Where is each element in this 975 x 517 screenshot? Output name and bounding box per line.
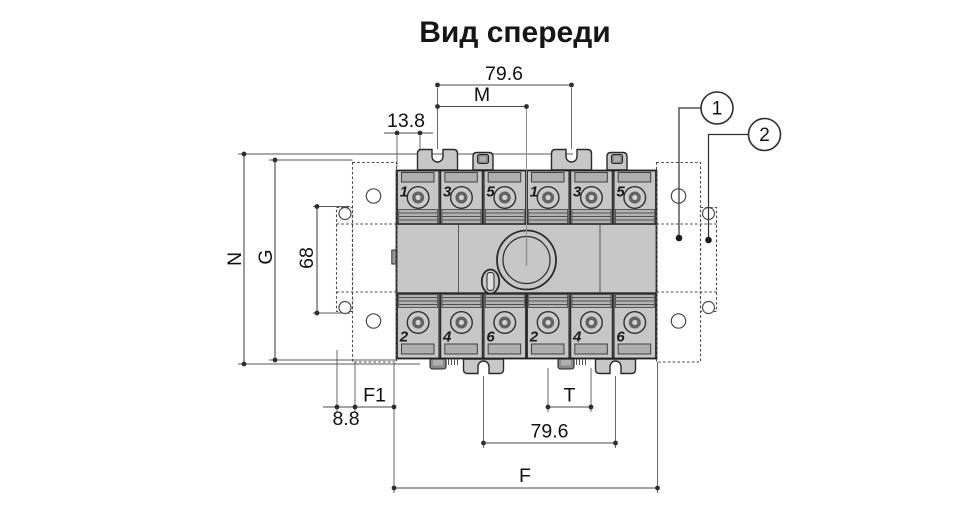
dim-dot <box>242 152 247 157</box>
terminal-number: 5 <box>486 184 495 201</box>
dim-label: F1 <box>363 385 386 407</box>
terminal-number: 3 <box>443 184 452 201</box>
terminal-lip <box>402 344 435 354</box>
dim-dot <box>315 311 320 316</box>
terminal-number: 1 <box>400 184 408 201</box>
mounting-tab-top-left <box>418 150 458 171</box>
tab-hole-inner <box>480 157 486 162</box>
callout-label: 2 <box>759 125 770 146</box>
dim-dot <box>481 441 486 446</box>
dim-f: F <box>392 465 660 490</box>
terminal-number: 3 <box>573 184 582 201</box>
terminal-lip <box>488 173 521 183</box>
dim-m: M <box>435 84 529 109</box>
terminal-number: 4 <box>442 329 452 346</box>
terminal-screw-center <box>589 195 594 200</box>
plate-hole-icon <box>366 314 380 328</box>
dim-dot <box>546 405 551 410</box>
terminal-screw-center <box>589 320 594 325</box>
din-clip-inner <box>561 360 571 366</box>
plate-hole-icon <box>366 189 380 203</box>
terminal-screw-center <box>502 320 507 325</box>
dim-left-offset: 13.8 <box>384 110 433 135</box>
terminal-screw-center <box>632 320 637 325</box>
mounting-tab-bottom-right <box>596 359 636 374</box>
dim-dot <box>589 405 594 410</box>
drawing-page: 135135 246246 79.6 <box>0 0 975 517</box>
terminal-screw-center <box>545 320 550 325</box>
terminal-number: 2 <box>529 329 539 346</box>
dim-dot <box>392 405 397 410</box>
callout-label: 1 <box>712 99 723 120</box>
dim-dot <box>435 104 440 109</box>
flange-hole-icon <box>339 208 351 220</box>
dim-dot <box>315 204 320 209</box>
plate-hole-icon <box>671 314 685 328</box>
terminal-lip <box>618 173 651 183</box>
terminal-lip <box>575 344 608 354</box>
terminal-screw-center <box>459 195 464 200</box>
mounting-tab-bottom-left <box>464 359 504 374</box>
front-view-drawing: 135135 246246 79.6 <box>0 0 975 517</box>
terminal-screw-center <box>459 320 464 325</box>
terminal-lip <box>445 173 478 183</box>
terminal-screw-center <box>416 320 421 325</box>
dim-top-width: 79.6 <box>435 63 574 87</box>
terminal-row-bottom: 246246 <box>397 294 656 359</box>
terminal-number: 2 <box>399 329 409 346</box>
dim-t: T <box>546 385 594 410</box>
dim-dot <box>613 441 618 446</box>
mounting-tab-top-right <box>552 150 592 171</box>
page-title: Вид спереди <box>419 16 610 49</box>
terminal-number: 6 <box>486 329 495 346</box>
callout-leader <box>679 108 701 238</box>
terminal-screw-center <box>416 195 421 200</box>
dim-label: 68 <box>296 247 318 269</box>
dim-label: 13.8 <box>387 110 425 132</box>
dim-dot <box>435 83 440 88</box>
dim-label: 79.6 <box>485 63 523 85</box>
terminal-lip <box>531 173 564 183</box>
terminal-lip <box>445 344 478 354</box>
terminal-lip <box>618 344 651 354</box>
terminal-screw-center <box>632 195 637 200</box>
dim-label: T <box>564 385 576 407</box>
dim-bottom-width: 79.6 <box>481 421 618 446</box>
terminal-screw-center <box>545 195 550 200</box>
terminal-lip <box>402 173 435 183</box>
dim-hole-pitch: 68 <box>296 204 319 315</box>
dim-g: G <box>255 158 277 363</box>
terminal-number: 5 <box>616 184 625 201</box>
dim-dot <box>569 83 574 88</box>
terminal-number: 1 <box>530 184 538 201</box>
tab-hole-inner <box>614 157 620 162</box>
dim-dot <box>392 486 397 491</box>
callout-leader-dot <box>705 237 712 244</box>
dim-label: F <box>519 465 531 487</box>
terminal-lip <box>531 344 564 354</box>
dim-label: 8.8 <box>332 408 359 430</box>
callouts: 1 2 <box>676 92 781 243</box>
flange-hole-icon <box>339 302 351 314</box>
dim-label: M <box>474 84 490 106</box>
terminal-number: 6 <box>616 329 625 346</box>
din-clip-inner <box>433 360 443 366</box>
dim-edge-offset-f1: 8.8 F1 <box>323 385 396 431</box>
terminal-screw-center <box>502 195 507 200</box>
dim-dot <box>273 158 278 163</box>
callout-leader-dot <box>676 235 683 242</box>
padlock-slot-inner <box>487 273 494 291</box>
flange-hole-icon <box>703 302 715 314</box>
terminal-number: 4 <box>572 329 582 346</box>
dim-n: N <box>224 152 246 367</box>
dim-dot <box>524 104 529 109</box>
dim-label: G <box>255 249 277 264</box>
dim-label: 79.6 <box>531 421 569 443</box>
dim-dot <box>655 486 660 491</box>
terminal-lip <box>488 344 521 354</box>
dim-dot <box>273 358 278 363</box>
dim-dot <box>242 362 247 367</box>
terminal-lip <box>575 173 608 183</box>
left-plate-flange <box>337 208 353 312</box>
dim-label: N <box>224 252 246 266</box>
switch-device: 135135 246246 <box>392 150 657 374</box>
